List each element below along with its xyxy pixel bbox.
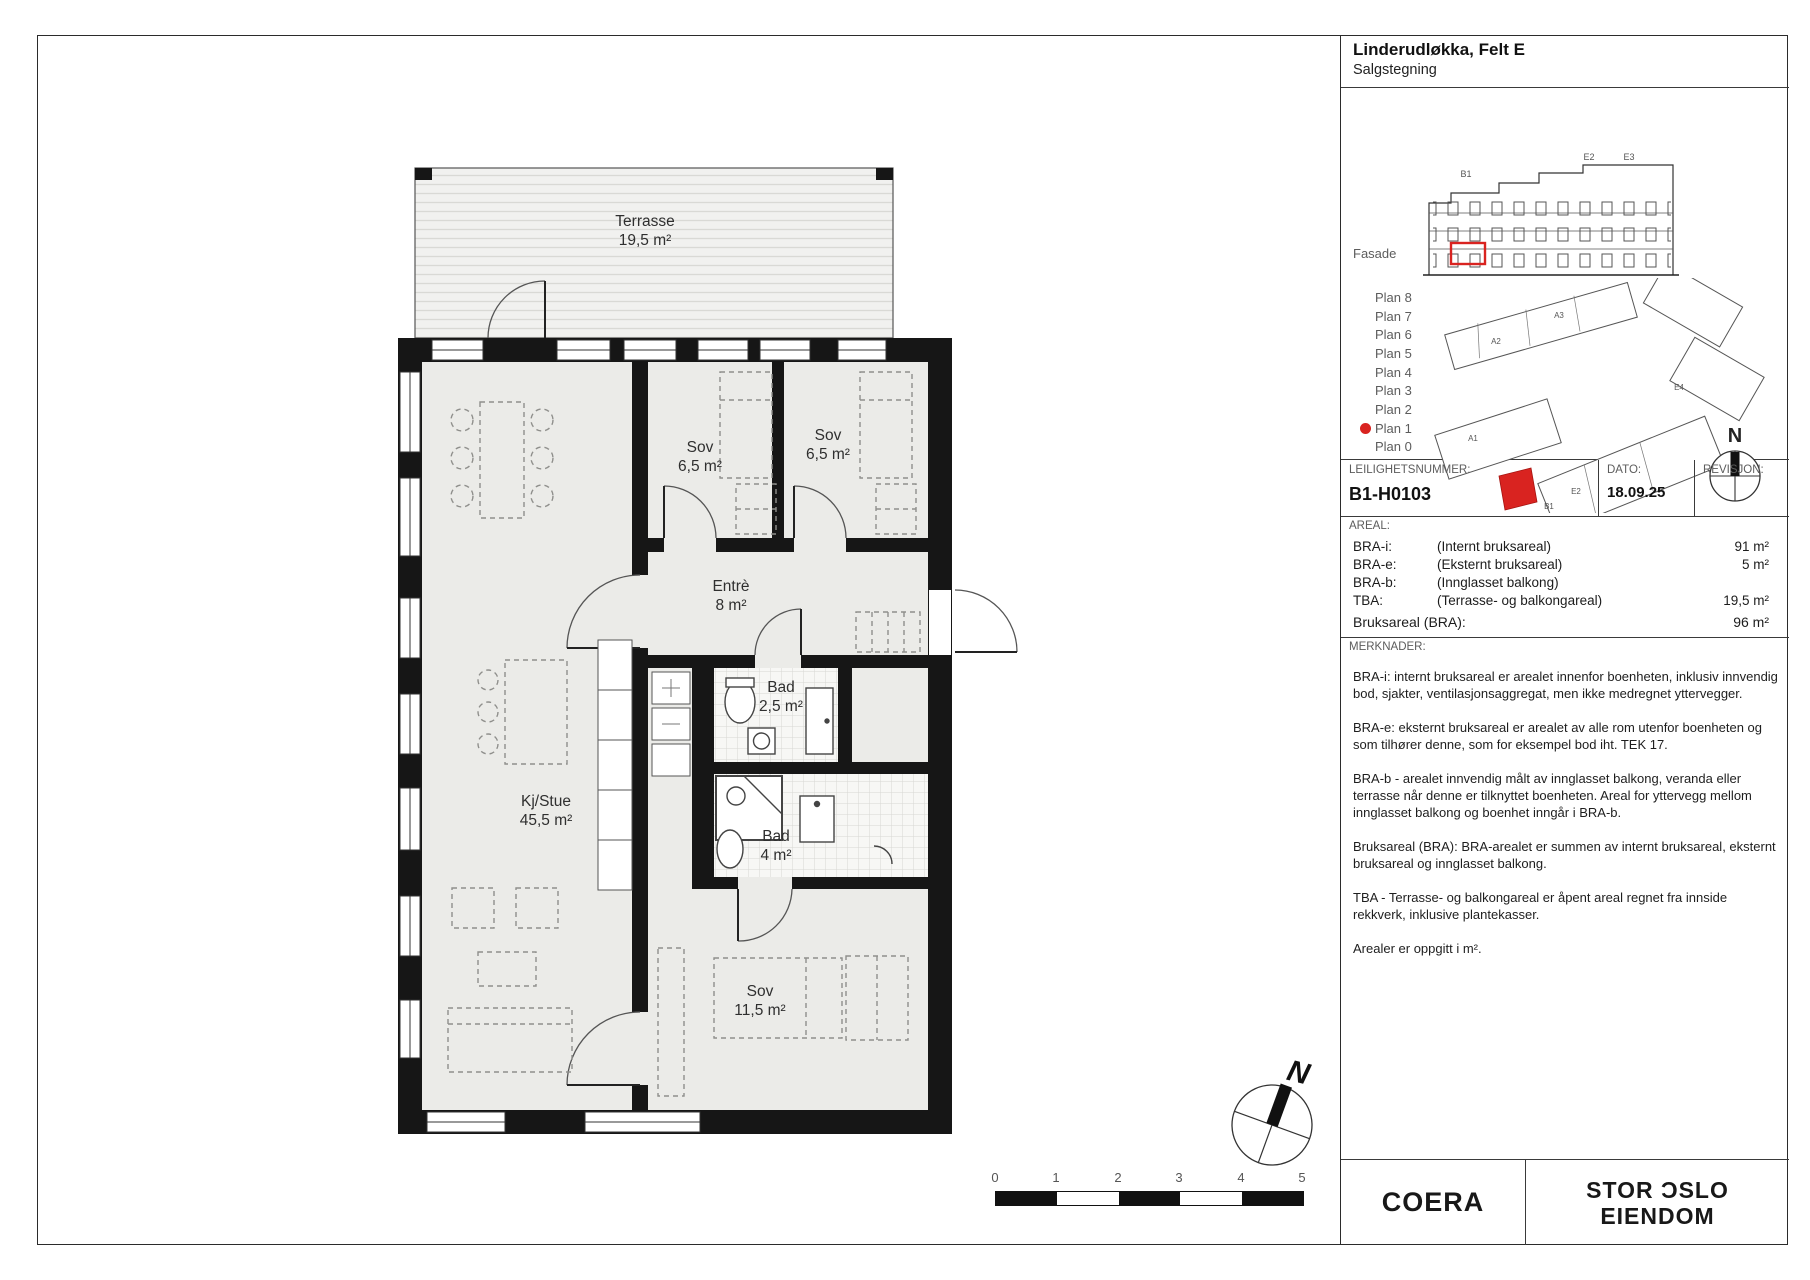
north-label-titleblock: N bbox=[1728, 425, 1742, 447]
apartment-number-cell: LEILIGHETSNUMMER: B1-H0103 bbox=[1341, 460, 1598, 517]
scale-tick: 4 bbox=[1237, 1170, 1244, 1185]
plan-item: Plan 2 bbox=[1359, 400, 1412, 419]
plan-item: Plan 4 bbox=[1359, 363, 1412, 382]
scale-tick: 1 bbox=[1052, 1170, 1059, 1185]
locator-panel: B1 E2 E3 Fasade Plan 8 Plan 7 Plan 6 Pla… bbox=[1341, 88, 1789, 460]
north-compass-plan: N bbox=[1221, 1054, 1324, 1176]
apartment-number: B1-H0103 bbox=[1349, 484, 1431, 505]
fasade-caption: Fasade bbox=[1353, 246, 1396, 261]
svg-text:E3: E3 bbox=[1623, 152, 1634, 162]
svg-text:B1: B1 bbox=[1460, 169, 1471, 179]
room-label-sov2: Sov6,5 m² bbox=[758, 426, 898, 464]
apartment-row: LEILIGHETSNUMMER: B1-H0103 DATO: 18.09.2… bbox=[1341, 460, 1789, 517]
scale-tick: 2 bbox=[1114, 1170, 1121, 1185]
room-label-bad4: Bad4 m² bbox=[706, 827, 846, 865]
date-value: 18.09.25 bbox=[1607, 484, 1665, 501]
scale-tick: 5 bbox=[1298, 1170, 1305, 1185]
merknader-text: BRA-i: internt bruksareal er arealet inn… bbox=[1353, 668, 1783, 974]
drawing-type: Salgstegning bbox=[1353, 62, 1437, 78]
room-label-entre: Entrè8 m² bbox=[651, 577, 811, 615]
north-label-plan: N bbox=[1284, 1054, 1314, 1092]
areal-row: TBA:(Terrasse- og balkongareal)19,5 m² bbox=[1353, 593, 1777, 611]
scale-tick: 3 bbox=[1175, 1170, 1182, 1185]
project-title: Linderudløkka, Felt E bbox=[1353, 40, 1525, 60]
room-label-terrasse: Terrasse19,5 m² bbox=[565, 212, 725, 250]
svg-text:E2: E2 bbox=[1583, 152, 1594, 162]
plan-item: Plan 8 bbox=[1359, 288, 1412, 307]
plan-item-active: Plan 1 bbox=[1359, 419, 1412, 438]
revision-cell: REVISJON: bbox=[1694, 460, 1789, 517]
room-label-bad25: Bad2,5 m² bbox=[701, 678, 861, 716]
areal-row: BRA-b:(Innglasset balkong) bbox=[1353, 575, 1777, 593]
floor-plan-svg: N bbox=[0, 0, 1340, 1280]
plan-item: Plan 6 bbox=[1359, 325, 1412, 344]
logo-row: COERA STOR ƆSLO EIENDOM bbox=[1341, 1160, 1789, 1245]
plan-item: Plan 3 bbox=[1359, 381, 1412, 400]
room-label-sov3: Sov11,5 m² bbox=[680, 982, 840, 1020]
title-block-header: Linderudløkka, Felt E Salgstegning bbox=[1341, 35, 1789, 88]
drawing-page: N Terrasse19,5 m² Sov6,5 m² Sov6,5 m² En… bbox=[0, 0, 1810, 1280]
plan-level-list: Plan 8 Plan 7 Plan 6 Plan 5 Plan 4 Plan … bbox=[1359, 288, 1412, 456]
active-plan-dot bbox=[1360, 423, 1371, 434]
room-label-kjstue: Kj/Stue45,5 m² bbox=[466, 792, 626, 830]
scale-bar-segments bbox=[995, 1191, 1304, 1206]
areal-table: AREAL: BRA-i:(Internt bruksareal)91 m² B… bbox=[1341, 517, 1789, 638]
svg-text:A1: A1 bbox=[1468, 434, 1478, 443]
coera-logo: COERA bbox=[1341, 1160, 1526, 1245]
plan-item: Plan 0 bbox=[1359, 438, 1412, 457]
scale-bar: 0 1 2 3 4 5 bbox=[995, 1170, 1304, 1208]
date-cell: DATO: 18.09.25 bbox=[1598, 460, 1694, 517]
areal-row: BRA-e:(Eksternt bruksareal)5 m² bbox=[1353, 557, 1777, 575]
areal-total-row: Bruksareal (BRA):96 m² bbox=[1353, 614, 1777, 632]
plan-item: Plan 5 bbox=[1359, 344, 1412, 363]
scale-tick: 0 bbox=[991, 1170, 998, 1185]
stor-oslo-eiendom-logo: STOR ƆSLO EIENDOM bbox=[1526, 1160, 1789, 1245]
areal-row: BRA-i:(Internt bruksareal)91 m² bbox=[1353, 539, 1777, 557]
svg-text:A2: A2 bbox=[1491, 337, 1501, 346]
svg-text:E4: E4 bbox=[1674, 383, 1684, 392]
plan-item: Plan 7 bbox=[1359, 307, 1412, 326]
room-label-sov1: Sov6,5 m² bbox=[630, 438, 770, 476]
svg-text:A3: A3 bbox=[1554, 311, 1564, 320]
facade-elevation: B1 E2 E3 bbox=[1421, 143, 1681, 285]
merknader-panel: MERKNADER: BRA-i: internt bruksareal er … bbox=[1341, 638, 1789, 1160]
title-block: Linderudløkka, Felt E Salgstegning bbox=[1340, 35, 1788, 1245]
terrace bbox=[415, 168, 893, 338]
